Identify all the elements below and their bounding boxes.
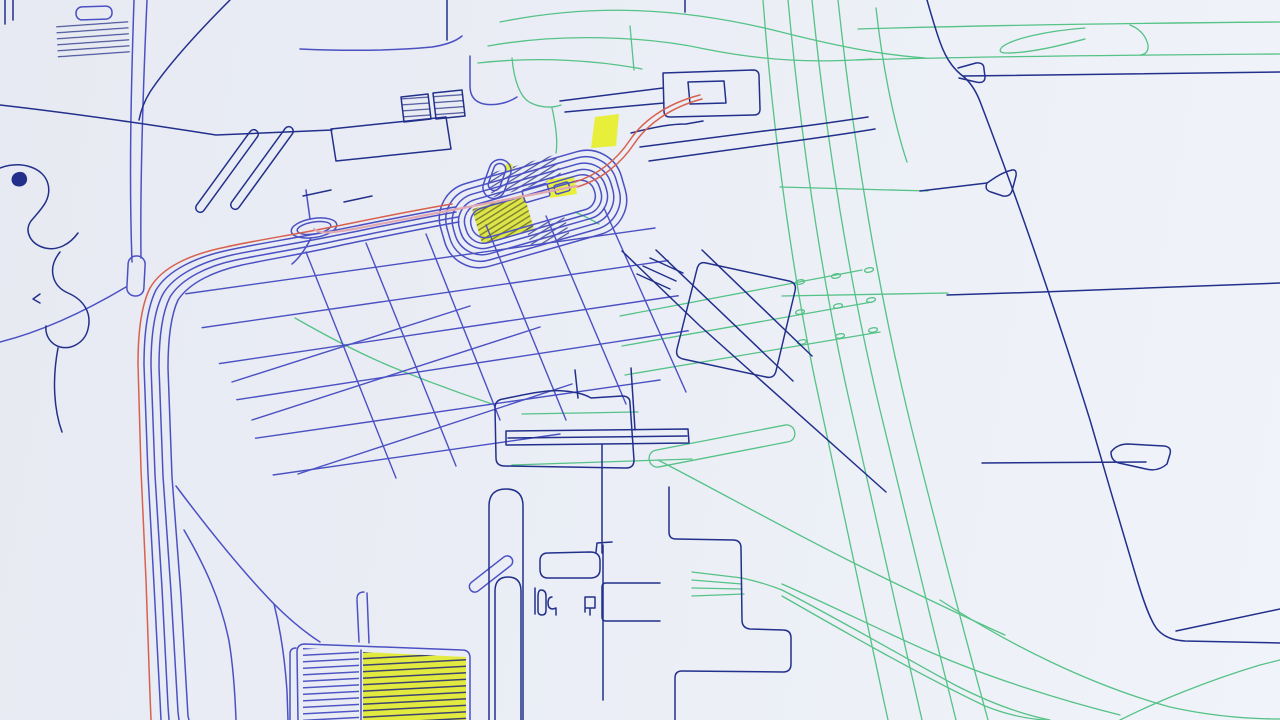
layer-route-highlight [138,95,702,720]
layer-hatch-fills [56,18,570,720]
layer-street-grid [170,208,706,478]
layer-airside-boundaries [0,0,1280,720]
airport-vector-map-canvas[interactable] [0,0,1280,720]
layer-road-network [0,0,635,720]
airport-vector-map-svg [0,0,1280,720]
